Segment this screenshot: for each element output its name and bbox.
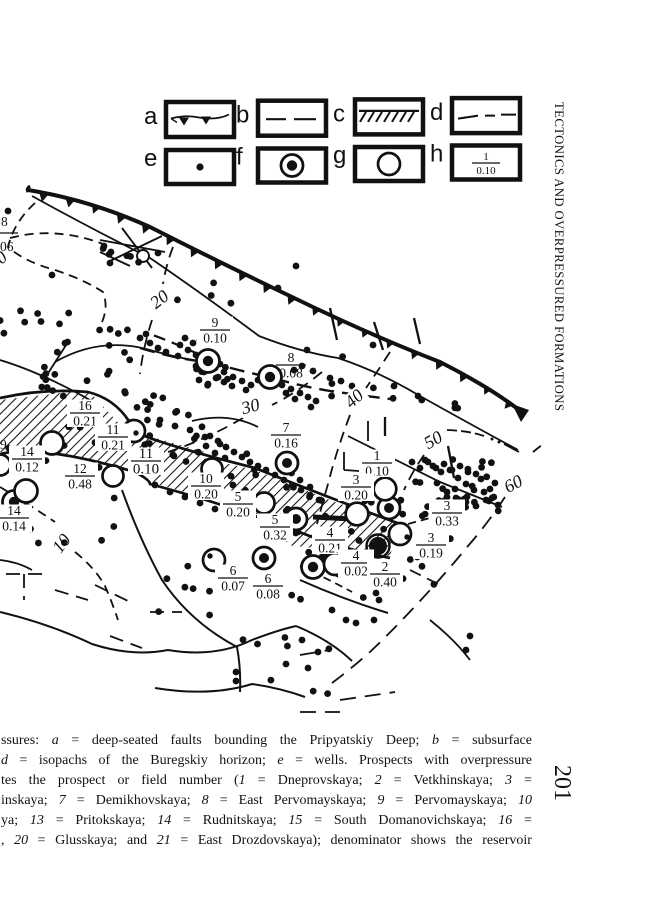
svg-text:g: g bbox=[333, 142, 346, 169]
svg-text:0.19: 0.19 bbox=[419, 546, 443, 561]
svg-text:10: 10 bbox=[199, 471, 213, 486]
svg-text:0.33: 0.33 bbox=[435, 514, 459, 529]
svg-text:14: 14 bbox=[7, 503, 21, 518]
svg-text:11: 11 bbox=[107, 422, 120, 437]
svg-text:0.07: 0.07 bbox=[221, 579, 245, 594]
svg-text:0.40: 0.40 bbox=[373, 575, 397, 590]
svg-text:a: a bbox=[144, 103, 158, 130]
svg-text:0.10: 0.10 bbox=[476, 165, 496, 177]
svg-text:0.08: 0.08 bbox=[256, 587, 280, 602]
svg-text:0.20: 0.20 bbox=[194, 487, 218, 502]
svg-text:0.08: 0.08 bbox=[279, 366, 303, 381]
svg-text:0.21: 0.21 bbox=[101, 438, 125, 453]
svg-text:0.16: 0.16 bbox=[274, 436, 298, 451]
svg-text:2: 2 bbox=[382, 559, 389, 574]
svg-text:b: b bbox=[236, 102, 249, 129]
svg-text:1: 1 bbox=[374, 448, 381, 463]
svg-text:f: f bbox=[236, 144, 243, 171]
svg-text:4: 4 bbox=[353, 548, 360, 563]
svg-text:0.20: 0.20 bbox=[226, 505, 250, 520]
svg-text:6: 6 bbox=[265, 571, 272, 586]
svg-text:3: 3 bbox=[353, 472, 360, 487]
svg-text:0.48: 0.48 bbox=[68, 477, 92, 492]
svg-text:5: 5 bbox=[235, 489, 242, 504]
svg-text:5: 5 bbox=[272, 512, 279, 527]
svg-text:1: 1 bbox=[483, 151, 489, 163]
svg-text:3: 3 bbox=[428, 530, 435, 545]
svg-text:16: 16 bbox=[78, 398, 92, 413]
svg-text:8: 8 bbox=[288, 350, 295, 365]
svg-text:9: 9 bbox=[212, 315, 219, 330]
svg-text:h: h bbox=[430, 141, 443, 168]
svg-text:7: 7 bbox=[283, 420, 290, 435]
svg-text:3: 3 bbox=[444, 498, 451, 513]
svg-text:4: 4 bbox=[327, 525, 334, 540]
svg-text:12: 12 bbox=[73, 461, 87, 476]
svg-text:0.12: 0.12 bbox=[15, 460, 39, 475]
svg-text:c: c bbox=[333, 100, 345, 127]
svg-text:d: d bbox=[430, 99, 443, 126]
svg-text:e: e bbox=[144, 145, 157, 172]
svg-text:0.10: 0.10 bbox=[203, 331, 227, 346]
svg-text:11: 11 bbox=[139, 446, 153, 462]
svg-text:14: 14 bbox=[20, 444, 34, 459]
svg-text:9: 9 bbox=[0, 437, 7, 452]
svg-text:0.20: 0.20 bbox=[344, 488, 368, 503]
svg-text:6: 6 bbox=[230, 563, 237, 578]
svg-text:0.02: 0.02 bbox=[344, 564, 368, 579]
svg-text:0.21: 0.21 bbox=[73, 414, 97, 429]
svg-text:0.14: 0.14 bbox=[2, 519, 26, 534]
svg-text:0.10: 0.10 bbox=[133, 462, 159, 478]
svg-text:0.32: 0.32 bbox=[263, 528, 287, 543]
svg-text:8: 8 bbox=[1, 214, 8, 229]
